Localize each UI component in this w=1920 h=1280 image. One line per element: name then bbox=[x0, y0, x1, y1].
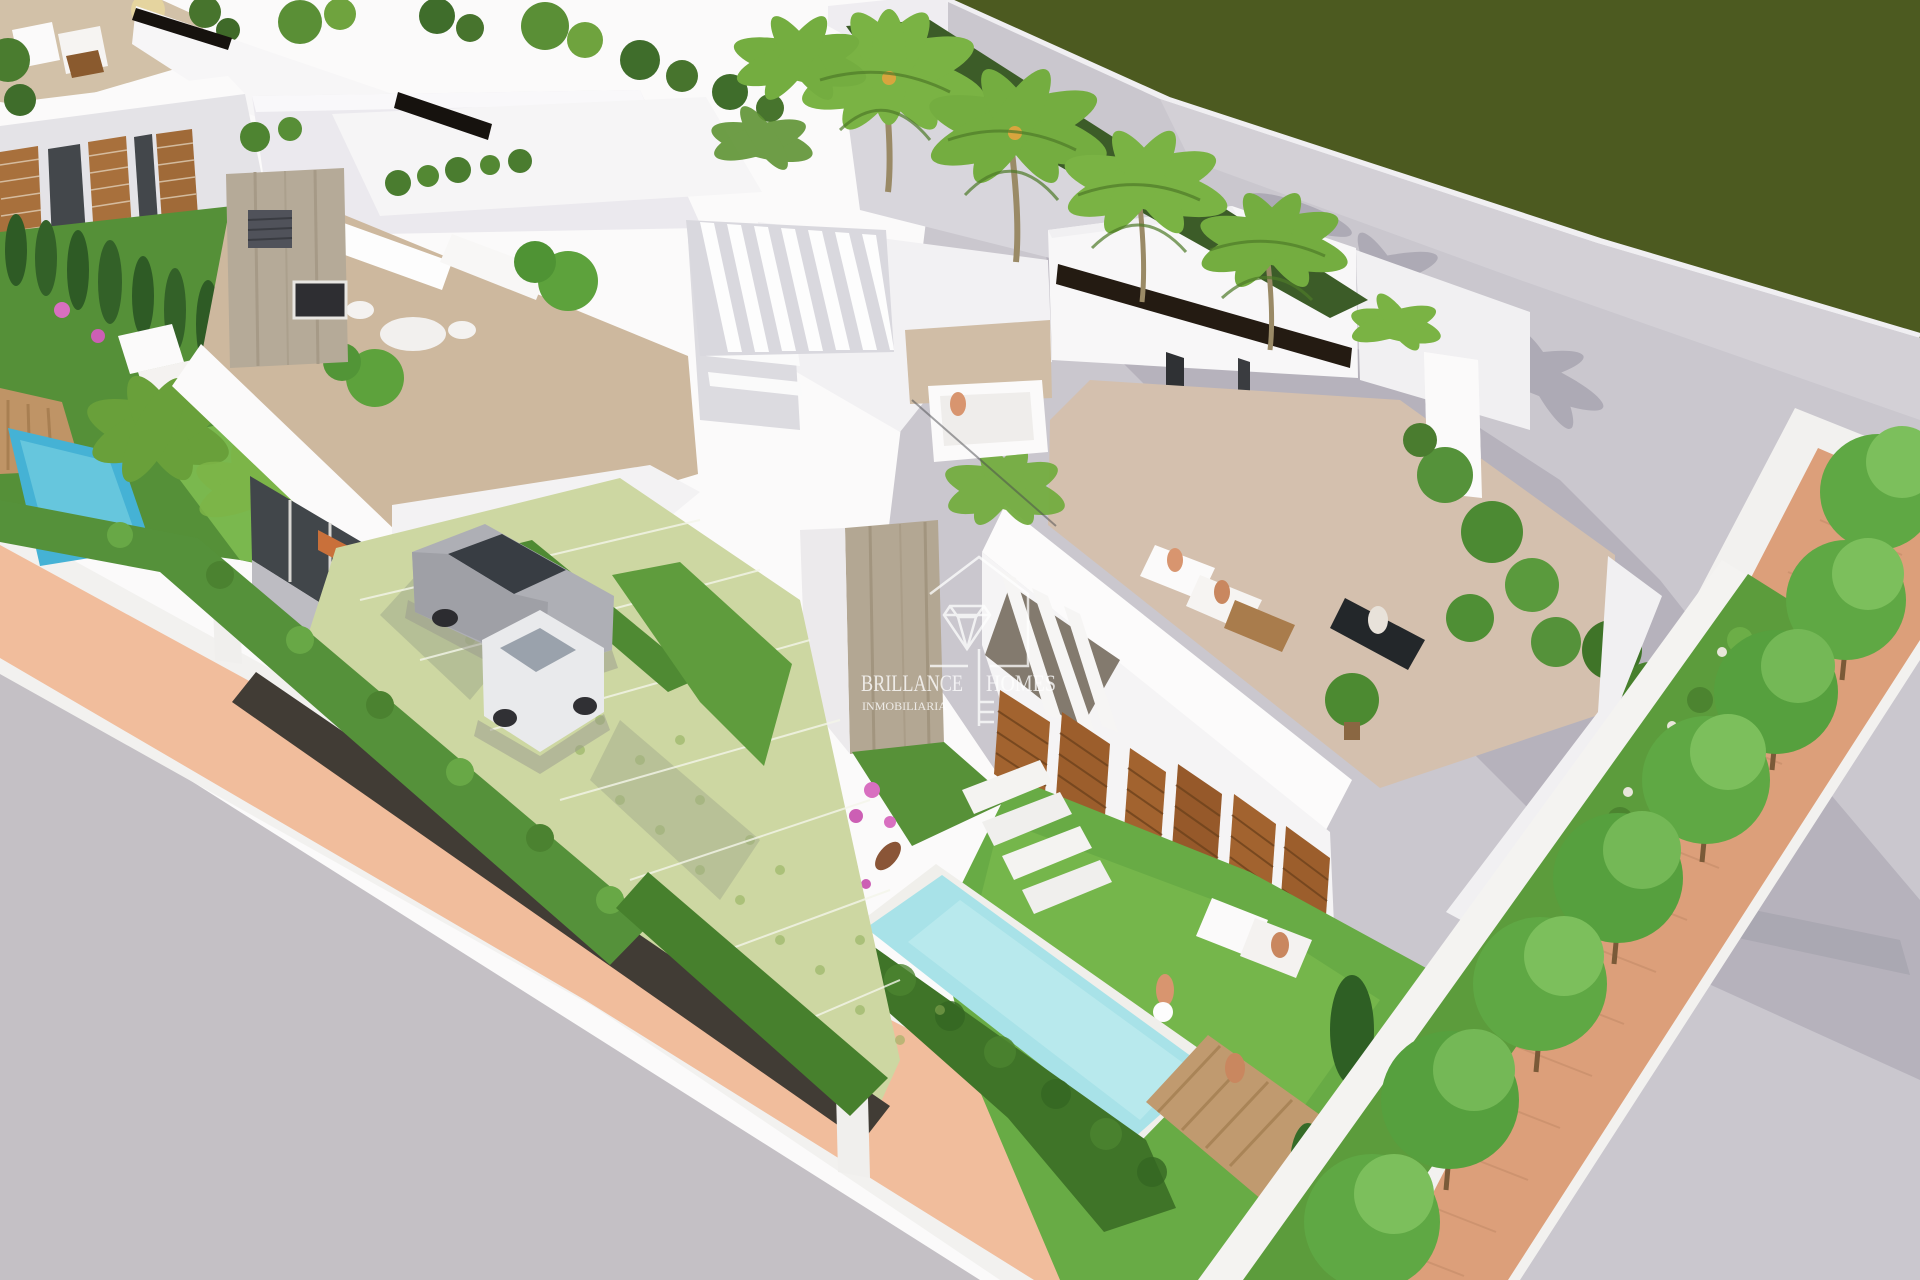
svg-text:HOMES: HOMES bbox=[986, 671, 1056, 696]
svg-text:BRILLANCE: BRILLANCE bbox=[861, 671, 963, 696]
svg-text:INMOBILIARIA: INMOBILIARIA bbox=[862, 699, 947, 713]
